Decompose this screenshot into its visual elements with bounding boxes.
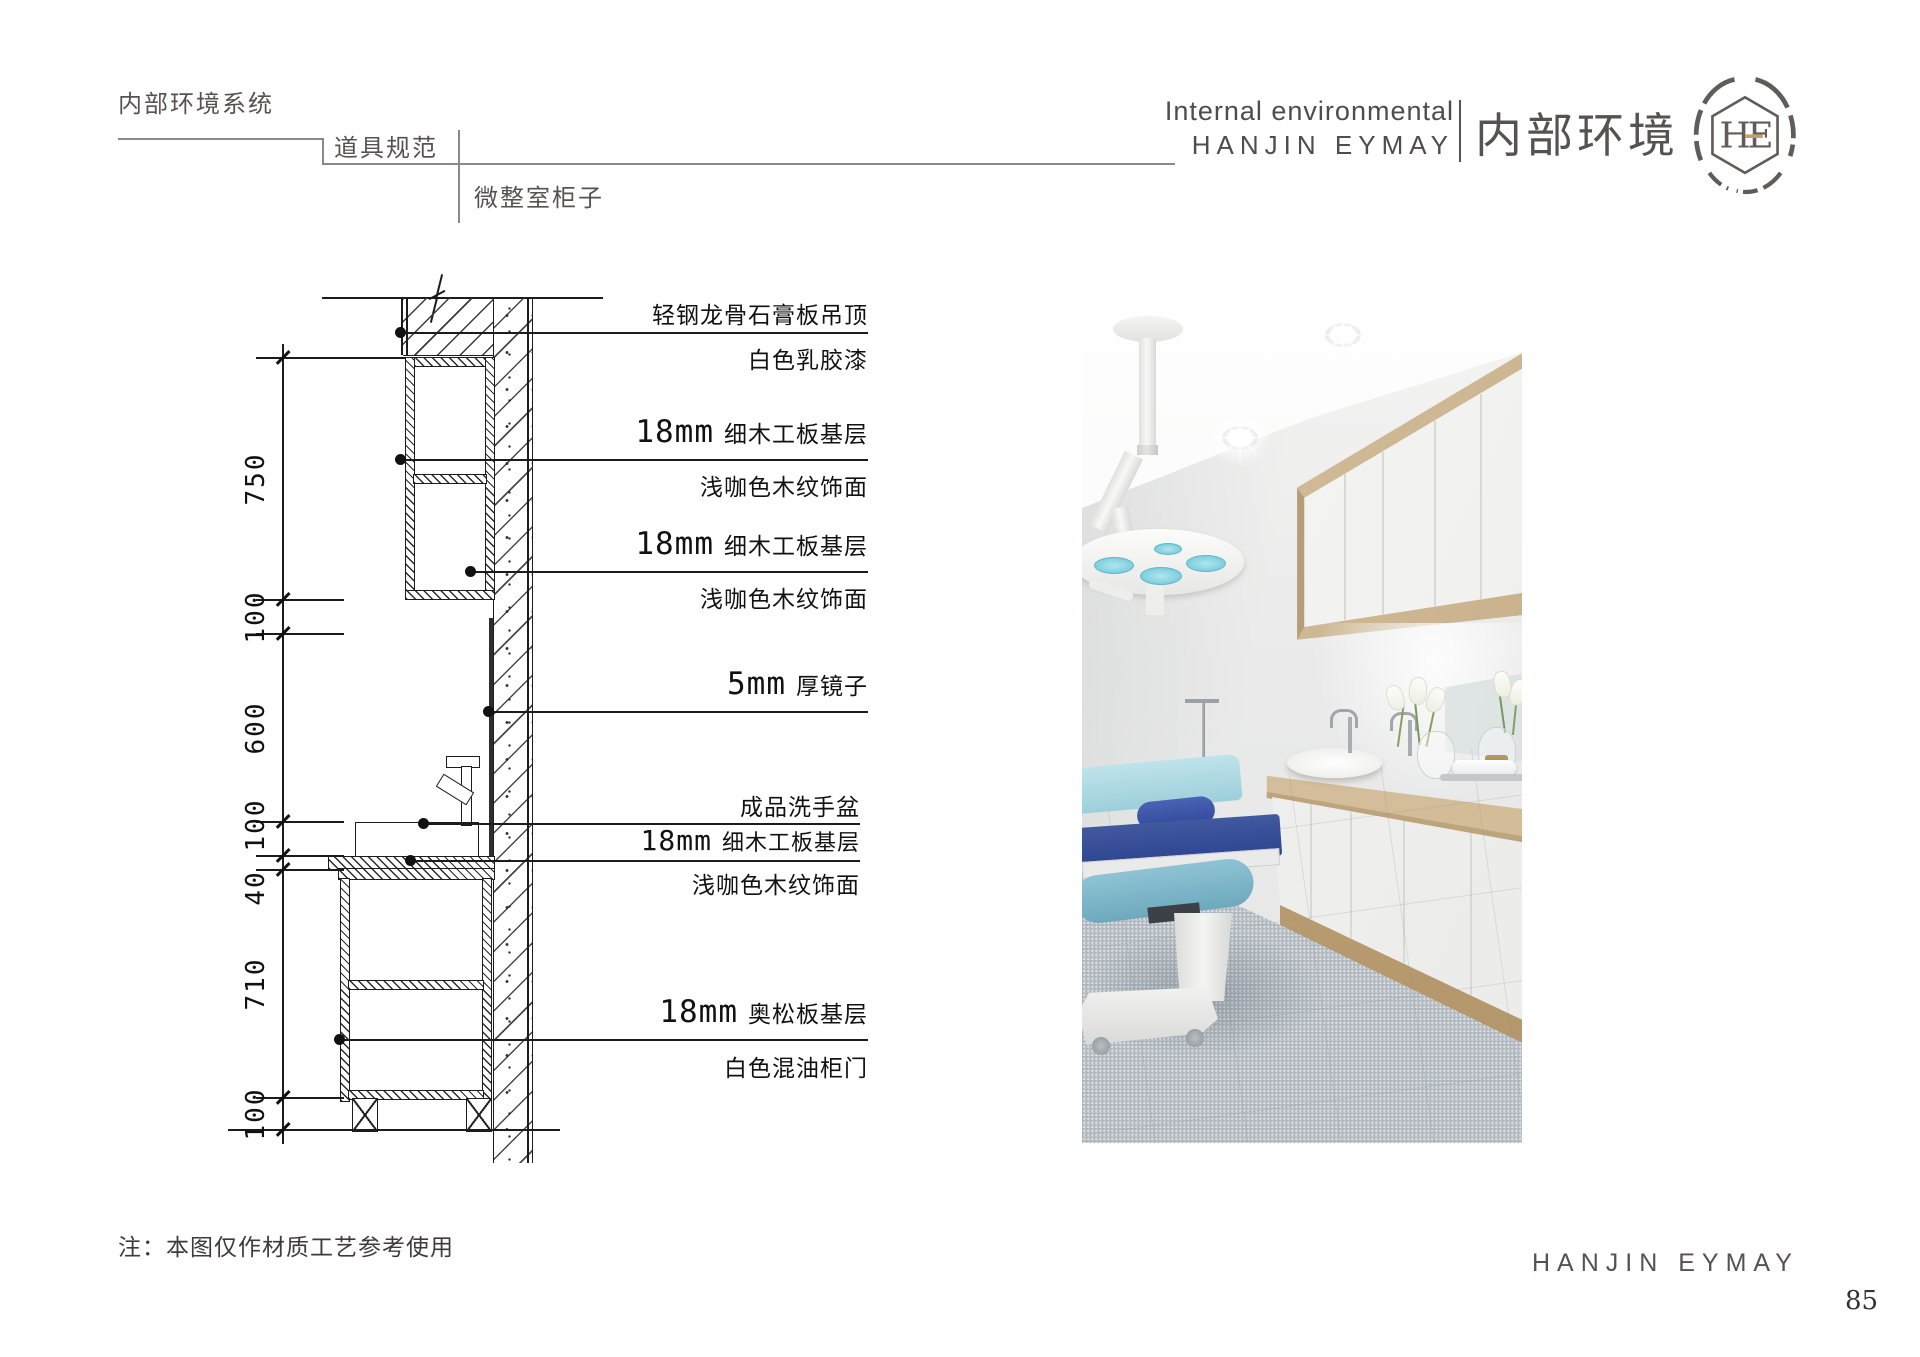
dim-label-710: 710 [241, 958, 271, 1011]
leader-line [410, 860, 860, 862]
lamp-center-handle [1146, 585, 1164, 619]
dim-label-100: 100 [241, 1088, 271, 1141]
leader-line [400, 459, 868, 461]
annotation-ceiling: 轻钢龙骨石膏板吊顶 [408, 296, 868, 330]
faucet-stem [1348, 717, 1352, 753]
dim-label-100: 100 [241, 799, 271, 852]
nav-level2: 道具规范 [334, 128, 438, 163]
footer-brand: HANJIN EYMAY [1532, 1249, 1799, 1278]
lamp-light-lens [1094, 557, 1134, 574]
page-number: 85 [1845, 1286, 1878, 1316]
nav-divider [458, 130, 460, 223]
annotation-thickness: 5mm [727, 666, 786, 702]
nav-rule-step [322, 138, 324, 165]
cabinet-door-seam [1434, 421, 1436, 607]
lower-cabinet-shelf [348, 980, 484, 990]
chrome-stand-handle [1185, 699, 1219, 703]
leader-dot [334, 1034, 345, 1045]
dim-label-750: 750 [241, 453, 271, 506]
annotation-sink: 成品洗手盆 [400, 788, 860, 822]
lamp-pole [1139, 338, 1156, 454]
reference-note: 注：本图仅作材质工艺参考使用 [118, 1228, 454, 1262]
annotation-board-4: 18mm奥松板基层 [408, 994, 868, 1030]
leader-line [470, 571, 868, 573]
document-page: 内部环境系统 道具规范 微整室柜子 Internal environmental… [0, 0, 1920, 1357]
annotation-door: 白色混油柜门 [408, 1049, 868, 1083]
cabinet-door-seam [1480, 394, 1482, 599]
dimension-line [282, 344, 284, 1144]
lamp-light-lens [1140, 567, 1182, 585]
nav-rule-top [118, 138, 322, 140]
cabinet-leg [466, 1098, 492, 1132]
leader-line [339, 1039, 868, 1041]
annotation-board-3: 18mm细木工板基层 [400, 824, 860, 857]
leader-dot [395, 454, 406, 465]
faucet [1390, 712, 1418, 731]
annotation-board-1: 18mm细木工板基层 [408, 414, 868, 450]
room-render-photo [1082, 293, 1522, 1143]
dim-label-600: 600 [241, 702, 271, 755]
faucet-stem [1408, 720, 1412, 756]
annotation-board-2: 18mm细木工板基层 [408, 526, 868, 562]
leader-line [488, 711, 868, 713]
annotation-thickness: 18mm [659, 994, 738, 1030]
cabinet-door-seam [1382, 452, 1384, 615]
annotation-veneer-3: 浅咖色木纹饰面 [400, 866, 860, 900]
annotation-thickness: 18mm [635, 414, 714, 450]
annotation-veneer-1: 浅咖色木纹饰面 [408, 468, 868, 502]
brand-block: Internal environmental HANJIN EYMAY [1040, 96, 1454, 161]
tray [1440, 774, 1522, 781]
lamp-handle-knob [1140, 615, 1170, 625]
lamp-light-lens [1154, 543, 1182, 555]
nav-level3: 微整室柜子 [474, 178, 604, 213]
brand-line1: Internal environmental [1040, 96, 1454, 127]
annotation-veneer-2: 浅咖色木纹饰面 [408, 580, 868, 614]
glass-vase [1417, 731, 1455, 779]
leader-dot [465, 566, 476, 577]
brand-cn: 内部环境 [1475, 97, 1679, 166]
vessel-sink [1287, 748, 1382, 778]
lower-cabinet-left-panel [340, 878, 350, 1102]
faucet [1330, 709, 1358, 728]
hexagon-logo-icon: HE [1686, 70, 1804, 196]
nav-level1: 内部环境系统 [118, 84, 274, 119]
header-rule [322, 163, 1175, 165]
annotation-mirror: 5mm厚镜子 [408, 666, 868, 702]
ceiling-spotlight [1210, 409, 1270, 469]
lamp-light-lens [1186, 555, 1226, 572]
caster-wheel [1092, 1037, 1110, 1055]
dim-extension [256, 855, 344, 857]
ceiling-spotlight [1313, 306, 1373, 366]
leader-line [400, 332, 868, 334]
dim-label-40: 40 [241, 870, 271, 905]
caster-wheel [1186, 1029, 1204, 1047]
annotation-thickness: 18mm [635, 526, 714, 562]
leader-dot [395, 327, 406, 338]
cabinet-door-seam [1344, 474, 1346, 621]
cabinet-leg [352, 1098, 378, 1132]
leader-dot [483, 706, 494, 717]
brand-divider [1459, 100, 1461, 162]
dim-label-100: 100 [241, 591, 271, 644]
lamp-joint [1137, 445, 1158, 455]
annotation-paint: 白色乳胶漆 [408, 341, 868, 375]
brand-line2: HANJIN EYMAY [1040, 130, 1454, 161]
annotation-thickness: 18mm [641, 824, 712, 857]
